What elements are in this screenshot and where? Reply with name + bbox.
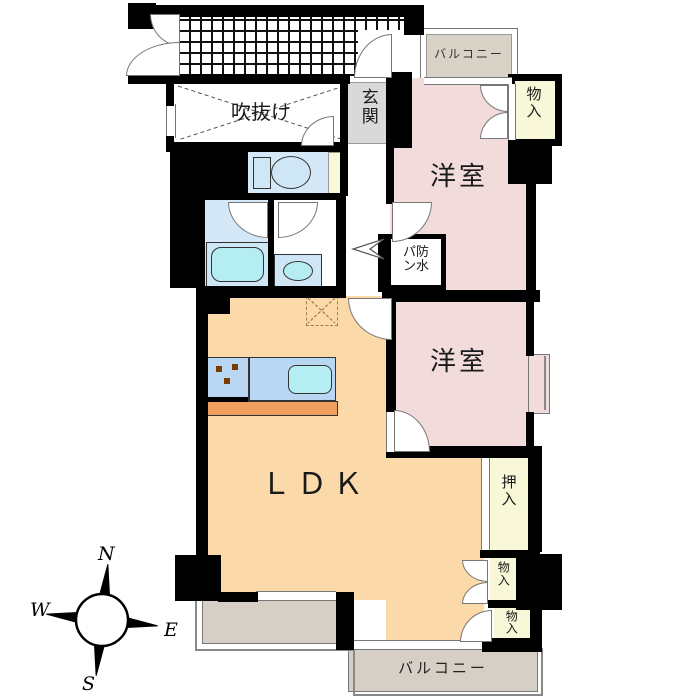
ldk: [202, 296, 386, 600]
stove-burner-3: [224, 378, 230, 384]
wall: [196, 290, 208, 558]
closet-sliding-door: [481, 458, 490, 550]
ceiling-hatch: [306, 296, 338, 326]
wall: [382, 290, 540, 302]
compass-e: E: [163, 619, 178, 641]
wall: [526, 184, 536, 302]
stove-burner-1: [216, 366, 222, 372]
balcony-outline-step-v: [353, 649, 355, 695]
ceiling-hatch-cross: [307, 297, 336, 324]
wall: [205, 193, 345, 200]
toilet-tank: [253, 157, 271, 189]
kitchen-counter: [203, 357, 336, 401]
balcony-outline-left: [195, 598, 197, 650]
closet-oshiire: 押入: [490, 456, 528, 552]
wall: [196, 290, 230, 314]
wall: [336, 592, 354, 650]
wall: [528, 446, 542, 552]
storage-top: 物入: [515, 81, 555, 139]
balcony-outline-bottom: [353, 694, 543, 696]
bay-window-line: [544, 356, 546, 410]
wall: [166, 84, 174, 106]
compass-hub: [73, 591, 130, 648]
wall: [508, 144, 552, 184]
balcony-outline-right: [541, 648, 543, 695]
kitchen-sink: [288, 365, 332, 394]
floor-plan: バルコニー 吹抜け 玄関 洋室 物入 パ防 ン水 洋室 ＬＤＫ: [0, 0, 700, 700]
storage-mid-label: 物入: [496, 561, 509, 587]
wall: [268, 200, 274, 288]
balcony-top: バルコニー: [426, 34, 512, 78]
toilet-bowl: [271, 156, 311, 189]
balcony-left-strip: [202, 598, 350, 644]
bedroom2-bay-window: [528, 354, 550, 414]
bedroom2-label: 洋室: [390, 348, 528, 377]
folding-door-symbol: [348, 236, 388, 262]
stove-burner-2: [232, 364, 238, 370]
entrance: 玄関: [346, 82, 388, 144]
wall: [170, 196, 205, 288]
balcony-bottom: バルコニー: [348, 646, 538, 692]
wall: [143, 5, 411, 17]
laundry-pan-line2: ン水: [391, 260, 441, 274]
wall: [530, 606, 542, 646]
bathtub: [206, 242, 270, 288]
compass-s: S: [82, 673, 95, 692]
storage-mid: 物入: [490, 558, 518, 604]
balcony-bottom-label: バルコニー: [349, 660, 537, 677]
wall: [386, 72, 412, 148]
balcony-outline-step-h: [195, 649, 355, 651]
laundry-pan: パ防 ン水: [386, 234, 446, 290]
wall: [526, 300, 534, 356]
wall: [175, 555, 221, 601]
wall: [386, 148, 394, 204]
window-ldk-bottom-left: [256, 591, 336, 601]
door-arc-corridor-lower: [126, 42, 180, 76]
laundry-pan-line1: パ防: [391, 246, 441, 260]
compass-n: N: [97, 543, 116, 565]
kitchen-strip: [203, 401, 338, 416]
entrance-label: 玄関: [358, 88, 377, 126]
wall: [340, 84, 348, 196]
kitchen-counter-base-wall: [203, 397, 248, 402]
wall: [404, 5, 424, 35]
balcony-top-label: バルコニー: [427, 48, 511, 61]
bathtub-inner: [211, 247, 264, 282]
vanity-bowl: [283, 261, 313, 281]
window-bedroom1-top: [424, 77, 512, 85]
wall: [336, 196, 346, 288]
storage-top-label: 物入: [525, 86, 542, 120]
storage-top-door-strip: [508, 84, 516, 140]
ldk-right-part: [386, 456, 484, 644]
compass-rose: N S W E: [30, 542, 180, 692]
storage-bottom-label: 物入: [504, 610, 517, 634]
vanity-sink: [274, 254, 322, 288]
compass-w: W: [30, 599, 51, 621]
wall: [170, 152, 248, 196]
wall: [218, 592, 258, 602]
laundry-pan-label: パ防 ン水: [391, 246, 441, 275]
closet-label: 押入: [500, 474, 517, 508]
window-atrium-left: [166, 104, 176, 138]
wall: [488, 600, 530, 608]
ldk-label: ＬＤＫ: [235, 468, 395, 501]
counter-divider: [248, 358, 250, 400]
